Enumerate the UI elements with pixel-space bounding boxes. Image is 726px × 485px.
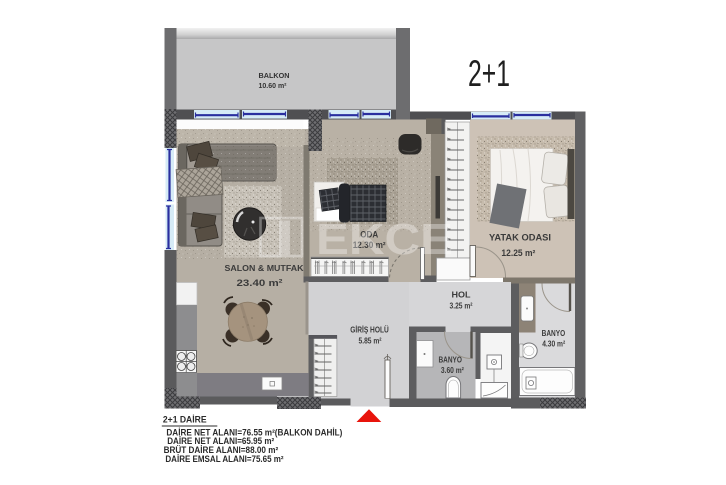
svg-text:EKCE: EKCE	[316, 215, 453, 264]
svg-text:3.60 m²: 3.60 m²	[441, 366, 464, 375]
svg-text:2+1: 2+1	[468, 53, 510, 94]
svg-text:4.30 m²: 4.30 m²	[542, 339, 565, 348]
svg-text:DAİRE EMSAL ALANI=75.65 m²: DAİRE EMSAL ALANI=75.65 m²	[165, 454, 283, 464]
svg-text:BANYO: BANYO	[438, 356, 462, 365]
svg-text:10.60 m²: 10.60 m²	[259, 81, 287, 90]
svg-text:BANYO: BANYO	[542, 329, 566, 338]
svg-text:5.85 m²: 5.85 m²	[359, 336, 382, 345]
svg-text:BALKON: BALKON	[259, 71, 290, 80]
svg-text:12.25 m²: 12.25 m²	[501, 248, 535, 258]
svg-text:2+1 DAİRE: 2+1 DAİRE	[163, 415, 207, 426]
svg-text:3.25 m²: 3.25 m²	[450, 302, 473, 311]
svg-text:23.40 m²: 23.40 m²	[237, 278, 283, 288]
svg-text:SALON & MUTFAK: SALON & MUTFAK	[225, 263, 305, 273]
svg-text:YATAK ODASI: YATAK ODASI	[489, 232, 551, 242]
svg-text:GİRİŞ HOLÜ: GİRİŞ HOLÜ	[350, 325, 389, 335]
svg-text:HOL: HOL	[452, 291, 471, 300]
